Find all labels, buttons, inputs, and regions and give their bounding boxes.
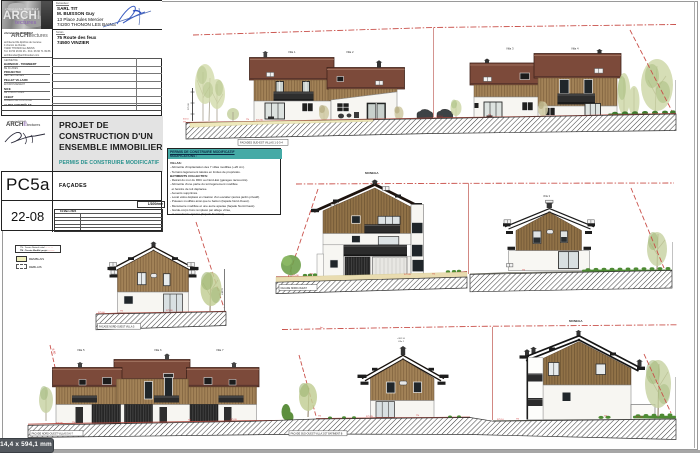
svg-text:371.10: 371.10 xyxy=(497,419,504,421)
svg-text:TN: TN xyxy=(604,415,607,417)
svg-text:FACADES SUD-EST VILLAS 1-2-3-4: FACADES SUD-EST VILLAS 1-2-3-4 xyxy=(240,141,283,145)
svg-text:371.90: 371.90 xyxy=(256,120,263,122)
svg-text:Villa 3: Villa 3 xyxy=(506,47,514,51)
svg-text:TN: TN xyxy=(318,416,321,418)
svg-text:371.60: 371.60 xyxy=(98,312,105,314)
svg-text:370.95: 370.95 xyxy=(56,423,63,425)
svg-text:TN: TN xyxy=(416,415,419,417)
svg-text:Villa 2: Villa 2 xyxy=(398,341,405,343)
svg-text:Villa 7: Villa 7 xyxy=(216,348,224,352)
svg-text:371.20: 371.20 xyxy=(230,419,237,421)
svg-text:TN: TN xyxy=(488,115,491,117)
svg-text:Villa 5: Villa 5 xyxy=(77,348,85,352)
svg-text:LIMITE: LIMITE xyxy=(222,287,224,295)
svg-text:371.40: 371.40 xyxy=(636,417,643,419)
svg-text:Villa 2: Villa 2 xyxy=(346,50,354,54)
svg-text:371.35: 371.35 xyxy=(366,416,373,418)
svg-text:TN: TN xyxy=(432,273,435,275)
svg-text:FACADE NORD-OUEST VILLA 5: FACADE NORD-OUEST VILLA 5 xyxy=(99,326,135,329)
svg-text:TN: TN xyxy=(72,422,75,424)
svg-text:TN: TN xyxy=(310,274,313,276)
svg-text:372.05: 372.05 xyxy=(404,274,411,276)
svg-text:TN: TN xyxy=(120,311,123,313)
svg-text:372.0: 372.0 xyxy=(183,119,189,121)
svg-text:TN: TN xyxy=(246,119,249,121)
svg-text:371.90: 371.90 xyxy=(188,103,190,110)
svg-text:371.80: 371.80 xyxy=(166,310,173,312)
svg-text:MONEGA: MONEGA xyxy=(569,319,583,323)
svg-text:372.10: 372.10 xyxy=(436,116,443,118)
svg-text:FACADE NORD-OUEST VILLAS 5-6-7: FACADE NORD-OUEST VILLAS 5-6-7 xyxy=(32,433,74,436)
svg-text:Villa 4: Villa 4 xyxy=(571,47,579,51)
svg-text:MONEGA: MONEGA xyxy=(365,171,379,175)
svg-text:371.90: 371.90 xyxy=(292,275,299,277)
svg-text:Villa 6: Villa 6 xyxy=(154,348,162,352)
svg-text:Villa 3: Villa 3 xyxy=(543,194,551,198)
svg-text:FACADE NORD-OUEST: FACADE NORD-OUEST xyxy=(281,287,308,290)
svg-text:TN: TN xyxy=(188,420,191,422)
svg-text:FACADE SUD-OUEST VILLA 2 ET BA: FACADE SUD-OUEST VILLA 2 ET BATIMENT B xyxy=(291,433,343,436)
svg-text:TN: TN xyxy=(516,418,519,420)
svg-text:TN: TN xyxy=(522,270,525,272)
svg-text:lim.: lim. xyxy=(320,327,324,329)
svg-text:+382.10: +382.10 xyxy=(397,338,406,340)
svg-text:Villa 1: Villa 1 xyxy=(288,50,296,54)
